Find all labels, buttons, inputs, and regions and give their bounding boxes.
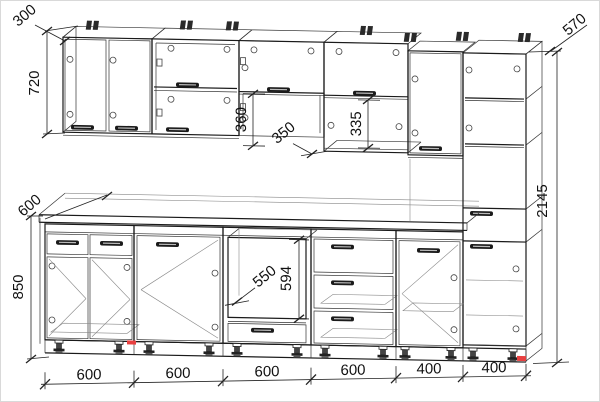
dim-label-360: 360 [233,107,250,132]
base-unit-1 [45,224,139,342]
base-unit-4-drawers [311,229,397,347]
wall-cabinet-4 [324,31,421,153]
dim-label-width-2: 600 [165,365,190,382]
dim-2145: 2145 [533,48,569,367]
blueprint-canvas: 360 350 335 550 594 [1,1,600,402]
base-unit-2 [134,226,223,344]
dim-label-width-6: 400 [481,359,506,376]
wall-cabinet-1 [63,26,165,137]
dim-335: 335 [348,96,380,153]
tall-cabinet [463,40,542,362]
dim-label-335: 335 [348,111,365,136]
dim-300: 300 [10,1,70,45]
dim-label-550: 550 [250,262,280,291]
blueprint-page: 360 350 335 550 594 [0,0,600,402]
dim-label-850: 850 [10,274,27,299]
base-unit-5 [396,231,463,348]
dim-594: 594 [278,235,309,323]
dim-label-570: 570 [560,10,590,39]
dim-360: 360 [233,89,265,150]
dim-label-2145: 2145 [534,184,551,217]
red-marker-left [127,340,136,344]
dim-label-300: 300 [10,1,40,30]
dim-720: 720 [26,26,78,138]
dim-label-594: 594 [278,266,295,291]
furniture-drawing: 360 350 335 550 594 [39,18,542,363]
red-marker-right [517,356,526,361]
dim-label-720: 720 [26,70,43,95]
dim-label-width-3: 600 [254,363,279,380]
dim-850: 850 [10,212,49,363]
dim-label-350: 350 [269,119,299,148]
dim-label-width-4: 600 [340,362,365,379]
dim-label-width-1: 600 [76,366,101,383]
dim-350: 350 [269,118,327,158]
dim-550: 550 [225,261,280,306]
base-unit-3-oven [223,227,317,345]
adjustable-feet [54,340,519,362]
dim-label-width-5: 400 [416,360,441,377]
dim-bottom-widths: 600 600 600 600 400 400 [40,359,531,390]
wall-cabinet-5 [408,41,475,159]
dim-570: 570 [529,10,590,55]
